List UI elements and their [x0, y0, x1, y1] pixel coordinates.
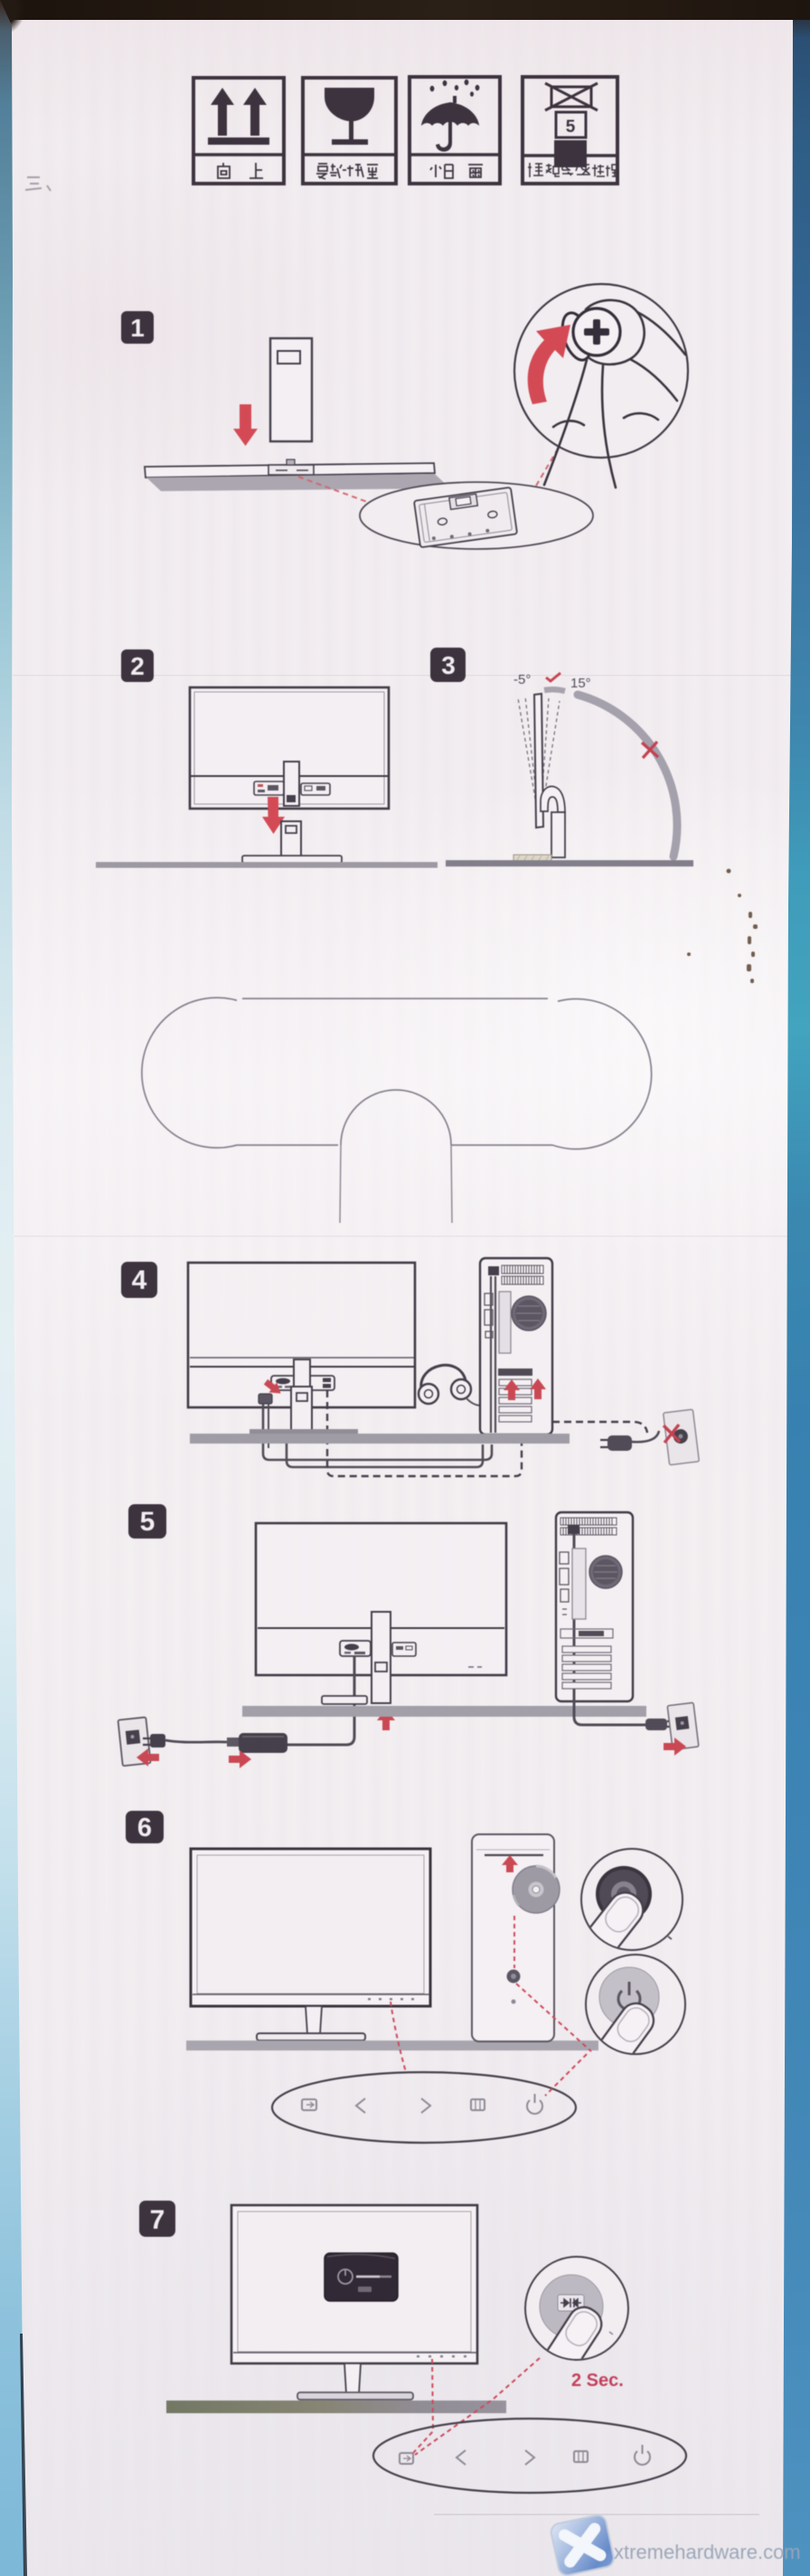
svg-text:2 Sec.: 2 Sec.	[571, 2371, 624, 2391]
svg-text:5: 5	[140, 1507, 155, 1537]
svg-text:7: 7	[150, 2205, 165, 2235]
svg-text:-5°: -5°	[513, 672, 531, 687]
svg-text:2: 2	[130, 652, 145, 680]
svg-text:15°: 15°	[570, 676, 591, 691]
svg-text:4: 4	[132, 1265, 147, 1295]
svg-text:1: 1	[130, 314, 145, 342]
svg-text:xtremehardware.com: xtremehardware.com	[614, 2541, 801, 2563]
svg-text:5: 5	[566, 118, 576, 137]
svg-text:3: 3	[441, 651, 456, 679]
svg-text:6: 6	[137, 1814, 152, 1842]
